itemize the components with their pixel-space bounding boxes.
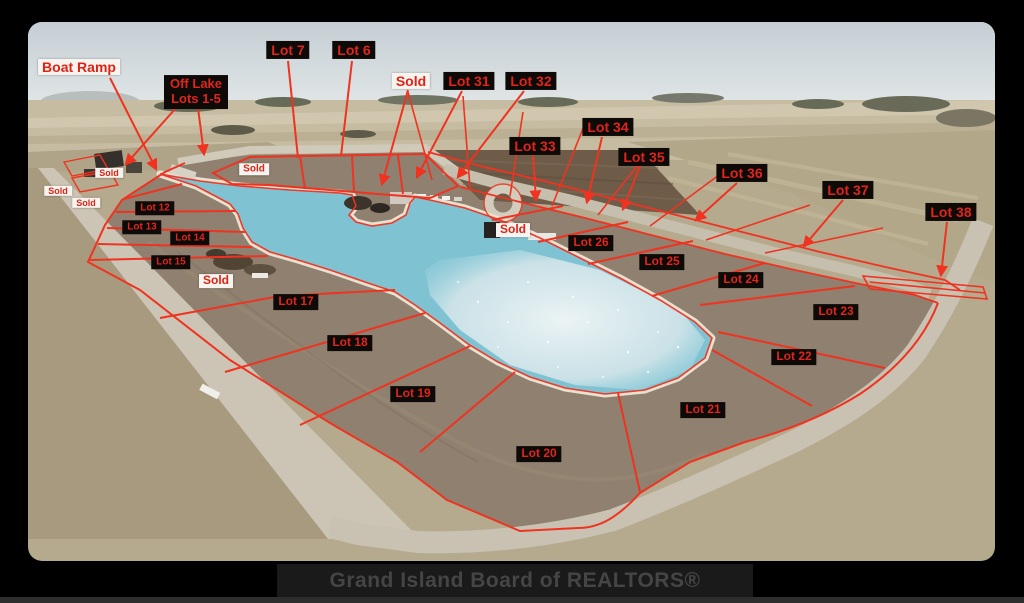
map-label-lot-6: Lot 6: [332, 41, 375, 59]
map-label-lot-25: Lot 25: [639, 254, 684, 270]
map-label-lot-31: Lot 31: [443, 72, 494, 90]
map-label-lot-22: Lot 22: [771, 349, 816, 365]
map-label-lot-36: Lot 36: [716, 164, 767, 182]
map-label-sold-lake-house: Sold: [496, 223, 530, 237]
map-label-lot-26: Lot 26: [568, 235, 613, 251]
map-label-boat-ramp: Boat Ramp: [38, 59, 120, 75]
watermark-text: Grand Island Board of REALTORS®: [330, 569, 701, 593]
map-label-lot-17: Lot 17: [273, 294, 318, 310]
map-label-lot-33: Lot 33: [509, 137, 560, 155]
aerial-photo: Boat RampLot 7Lot 6Off LakeLots 1-5SoldL…: [28, 22, 995, 561]
image-frame: Boat RampLot 7Lot 6Off LakeLots 1-5SoldL…: [0, 0, 1024, 603]
map-label-lot-15: Lot 15: [151, 255, 190, 269]
map-label-lot-14: Lot 14: [170, 231, 209, 245]
map-label-lot-21: Lot 21: [680, 402, 725, 418]
map-label-sold-house-left: Sold: [95, 168, 123, 178]
map-label-sold-shore-strip: Sold: [239, 163, 269, 175]
frame-footer-strip: [0, 597, 1024, 603]
map-label-lot-34: Lot 34: [582, 118, 633, 136]
map-label-lot-24: Lot 24: [718, 272, 763, 288]
map-label-sold-construction: Sold: [199, 274, 233, 288]
map-label-lot-13: Lot 13: [122, 220, 161, 234]
map-label-off-lake-lots-1-5: Off LakeLots 1-5: [164, 75, 228, 109]
map-label-lot-35: Lot 35: [618, 148, 669, 166]
map-label-lot-19: Lot 19: [390, 386, 435, 402]
map-label-lot-20: Lot 20: [516, 446, 561, 462]
map-label-lot-12: Lot 12: [135, 201, 174, 215]
map-label-sold-north: Sold: [392, 73, 430, 89]
map-label-sold-west-2: Sold: [72, 198, 100, 208]
annotation-labels: Boat RampLot 7Lot 6Off LakeLots 1-5SoldL…: [28, 22, 995, 561]
map-label-lot-7: Lot 7: [266, 41, 309, 59]
map-label-lot-32: Lot 32: [505, 72, 556, 90]
map-label-lot-18: Lot 18: [327, 335, 372, 351]
map-label-lot-37: Lot 37: [822, 181, 873, 199]
map-label-lot-38: Lot 38: [925, 203, 976, 221]
map-label-lot-23: Lot 23: [813, 304, 858, 320]
map-label-sold-west-1: Sold: [44, 186, 72, 196]
watermark-bar: Grand Island Board of REALTORS®: [277, 564, 753, 597]
